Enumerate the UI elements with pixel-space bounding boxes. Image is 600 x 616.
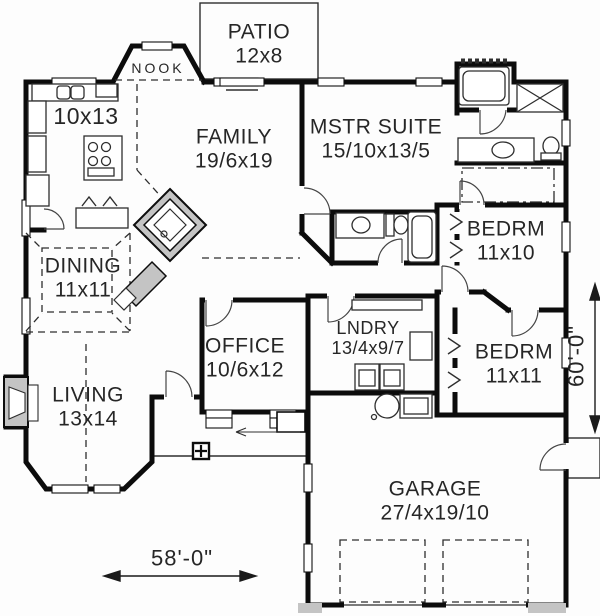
room-label-family: FAMILY 19/6x19 bbox=[195, 125, 273, 172]
room-name: MSTR SUITE bbox=[310, 115, 442, 139]
room-name: BEDRM bbox=[467, 217, 545, 241]
water-heater-icon bbox=[400, 394, 432, 418]
laundry-cabinet bbox=[410, 332, 432, 360]
dimension-height-label: 60'-0" bbox=[565, 325, 590, 387]
room-label-nook: NOOK bbox=[131, 61, 184, 77]
vanity-sink-icon bbox=[492, 142, 514, 158]
shower-icon bbox=[517, 84, 563, 112]
room-dims: 12x8 bbox=[228, 44, 290, 68]
kitchen-sink-icon bbox=[71, 86, 84, 99]
hall-bath-fixtures bbox=[336, 212, 436, 262]
room-dims: 11x11 bbox=[475, 364, 553, 388]
utility-sink-icon bbox=[372, 394, 400, 420]
room-label-bedrm2: BEDRM 11x11 bbox=[475, 340, 553, 387]
room-name: GARAGE bbox=[381, 477, 490, 501]
room-dims: 10x13 bbox=[53, 104, 118, 130]
height-dimension-arrow bbox=[590, 284, 600, 432]
room-label-office: OFFICE 10/6x12 bbox=[205, 334, 285, 381]
entry-closet bbox=[277, 412, 305, 432]
closet-dash-dot bbox=[462, 168, 554, 202]
dryer-icon bbox=[380, 364, 404, 390]
buffet-counter bbox=[76, 208, 128, 228]
refrigerator-icon bbox=[26, 175, 49, 206]
room-name: PATIO bbox=[228, 20, 290, 44]
room-name: LNDRY bbox=[331, 318, 404, 338]
dimension-text: 60'-0" bbox=[565, 325, 590, 387]
room-label-garage: GARAGE 27/4x19/10 bbox=[381, 477, 490, 524]
room-label-lndry: LNDRY 13/4x9/7 bbox=[331, 318, 404, 358]
room-dims: 27/4x19/10 bbox=[381, 501, 490, 525]
room-label-kitchen: 10x13 bbox=[53, 104, 118, 130]
range-icon bbox=[84, 136, 122, 180]
room-dims: 19/6x19 bbox=[195, 149, 273, 173]
room-dims: 10/6x12 bbox=[205, 358, 285, 382]
vanity-sink-icon bbox=[352, 217, 370, 233]
dimension-width-label: 58'-0" bbox=[151, 547, 213, 572]
toilet-icon bbox=[541, 137, 561, 160]
toilet-icon bbox=[386, 214, 408, 236]
room-label-living: LIVING 13x14 bbox=[52, 383, 124, 430]
room-name: BEDRM bbox=[475, 340, 553, 364]
floor-plan: PATIO 12x8 NOOK 10x13 FAMILY 19/6x19 MST… bbox=[0, 0, 600, 616]
room-label-mstr-suite: MSTR SUITE 15/10x13/5 bbox=[310, 115, 442, 162]
porch-column-icon bbox=[193, 443, 209, 459]
room-dims: 13/4x9/7 bbox=[331, 338, 404, 358]
room-dims: 11x10 bbox=[467, 241, 545, 265]
washer-icon bbox=[355, 364, 379, 390]
laundry-shelf bbox=[352, 300, 422, 310]
living-fireplace-icon bbox=[4, 377, 38, 427]
room-dims: 15/10x13/5 bbox=[310, 139, 442, 163]
room-label-bedrm1: BEDRM 11x10 bbox=[467, 217, 545, 264]
room-dims: 13x14 bbox=[52, 407, 124, 431]
width-dimension-arrow bbox=[104, 571, 256, 581]
room-name: OFFICE bbox=[205, 334, 285, 358]
room-label-patio: PATIO 12x8 bbox=[228, 20, 290, 67]
kitchen-sink-icon bbox=[57, 86, 70, 99]
room-dims: 11x11 bbox=[45, 278, 122, 302]
corner-fireplace-icon bbox=[114, 189, 206, 310]
room-name: NOOK bbox=[131, 61, 184, 77]
room-name: LIVING bbox=[52, 383, 124, 407]
room-name: FAMILY bbox=[195, 125, 273, 149]
floor-plan-drawing bbox=[0, 0, 600, 616]
dimension-text: 58'-0" bbox=[151, 547, 213, 572]
room-label-dining: DINING 11x11 bbox=[45, 254, 122, 301]
room-name: DINING bbox=[45, 254, 122, 278]
dishwasher-icon bbox=[96, 84, 117, 97]
